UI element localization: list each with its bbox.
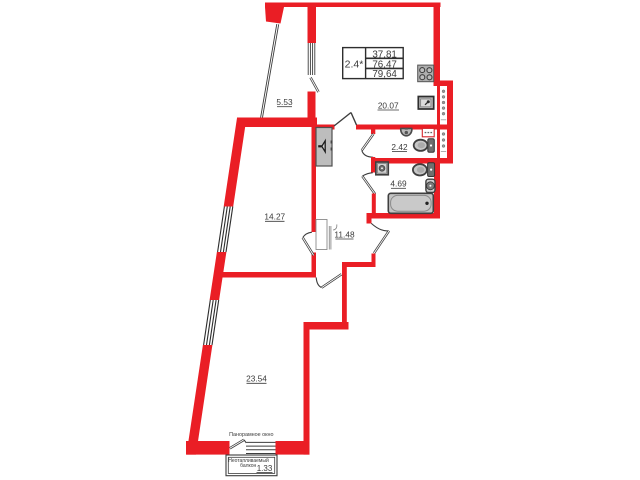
svg-text:11.48: 11.48	[334, 229, 355, 239]
svg-text:14.27: 14.27	[264, 212, 285, 222]
svg-text:1.33: 1.33	[257, 464, 273, 473]
svg-text:4.69: 4.69	[390, 179, 407, 189]
svg-text:балкон: балкон	[240, 463, 256, 469]
svg-text:20.07: 20.07	[378, 100, 399, 110]
svg-text:23.54: 23.54	[246, 374, 267, 384]
svg-text:79,64: 79,64	[372, 69, 397, 80]
svg-text:2.4*: 2.4*	[345, 59, 364, 71]
svg-text:2.42: 2.42	[391, 142, 408, 152]
svg-text:Панорамное окно: Панорамное окно	[229, 432, 273, 438]
svg-text:5.53: 5.53	[276, 97, 293, 107]
